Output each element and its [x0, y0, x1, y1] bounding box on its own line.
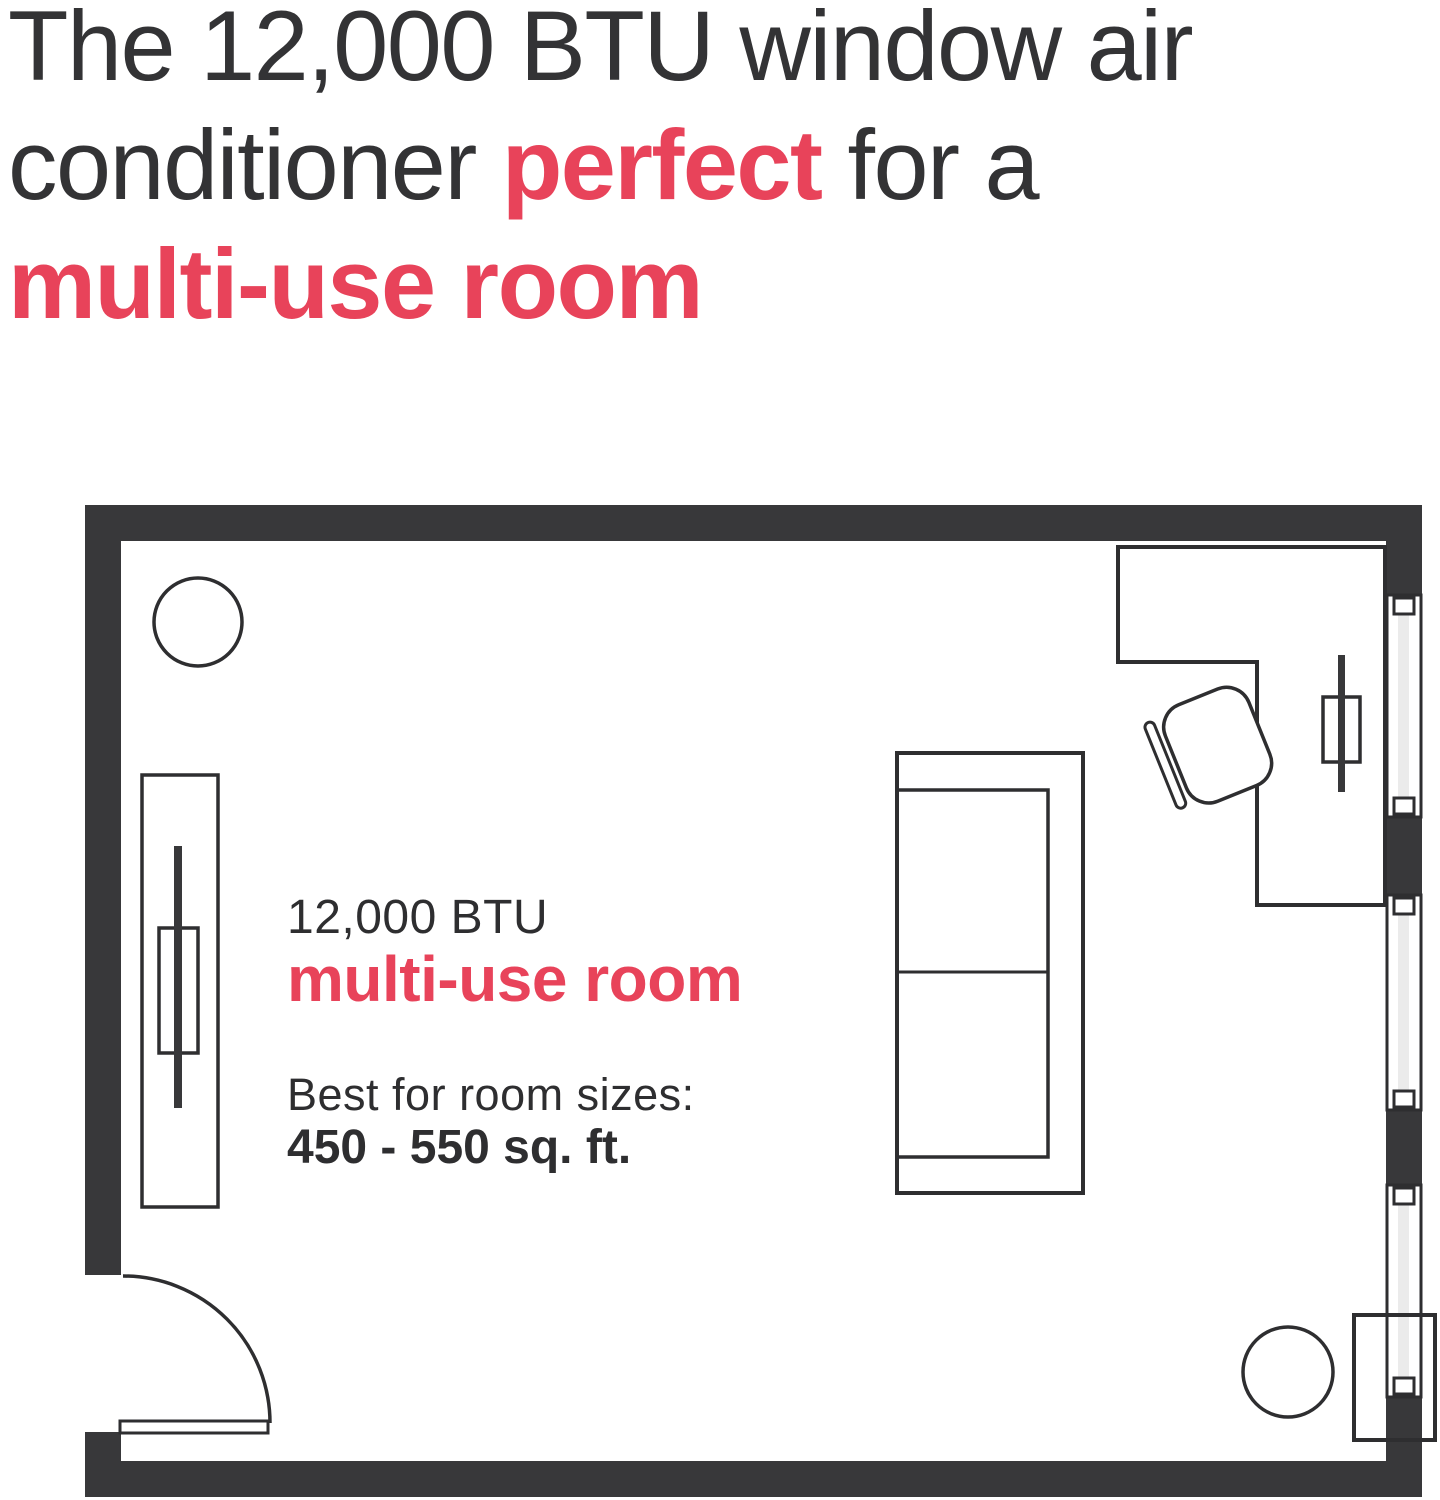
- infographic-canvas: The 12,000 BTU window air conditioner pe…: [0, 0, 1440, 1500]
- window-3-jamb-top: [1394, 1188, 1414, 1204]
- plant-circle-bottom-right: [1243, 1327, 1333, 1417]
- door-leaf: [120, 1421, 268, 1433]
- wall-left-upper: [85, 505, 121, 1275]
- headline-line-2-post: for a: [821, 109, 1038, 220]
- wall-top: [85, 505, 1422, 541]
- headline-line-1: The 12,000 BTU window air: [8, 0, 1438, 105]
- label-best-for: Best for room sizes:: [287, 1069, 907, 1121]
- wall-bottom: [85, 1461, 1422, 1497]
- window-1-jamb-bottom: [1394, 798, 1414, 814]
- window-1-glass: [1398, 598, 1409, 814]
- window-3-glass: [1398, 1188, 1409, 1394]
- window-3-jamb-bottom: [1394, 1378, 1414, 1394]
- monitor-screen-line: [1338, 655, 1345, 792]
- wall-right-seg-1: [1386, 505, 1422, 595]
- headline-line-2-pre: conditioner: [8, 109, 502, 220]
- label-size-range: 450 - 550 sq. ft.: [287, 1121, 907, 1175]
- headline: The 12,000 BTU window air conditioner pe…: [8, 0, 1438, 343]
- window-2-glass: [1398, 898, 1409, 1107]
- tv-console: [142, 775, 218, 1207]
- wall-right-seg-2: [1386, 817, 1422, 895]
- window-2: [1387, 895, 1421, 1110]
- headline-line-2-highlight: perfect: [502, 109, 822, 220]
- window-3: [1387, 1185, 1421, 1397]
- headline-line-3-highlight: multi-use room: [8, 228, 702, 339]
- wall-right-seg-3: [1386, 1110, 1422, 1185]
- window-2-jamb-top: [1394, 898, 1414, 914]
- door-swing-arc: [123, 1276, 270, 1423]
- label-room-type: multi-use room: [287, 946, 907, 1012]
- sofa: [897, 753, 1083, 1193]
- plant-circle-top-left: [154, 578, 242, 666]
- headline-line-3: multi-use room: [8, 224, 1438, 343]
- window-1-jamb-top: [1394, 598, 1414, 614]
- headline-line-2: conditioner perfect for a: [8, 105, 1438, 224]
- label-btu: 12,000 BTU: [287, 890, 907, 946]
- door: [120, 1276, 270, 1433]
- tv-screen-line: [174, 846, 182, 1108]
- windows: [1387, 595, 1421, 1397]
- headline-line-1-text: The 12,000 BTU window air: [8, 0, 1192, 101]
- room-labels: 12,000 BTU multi-use room Best for room …: [287, 890, 907, 1175]
- floor-plan: 12,000 BTU multi-use room Best for room …: [85, 505, 1440, 1497]
- wall-right-seg-4: [1386, 1397, 1422, 1497]
- window-1: [1387, 595, 1421, 817]
- window-2-jamb-bottom: [1394, 1091, 1414, 1107]
